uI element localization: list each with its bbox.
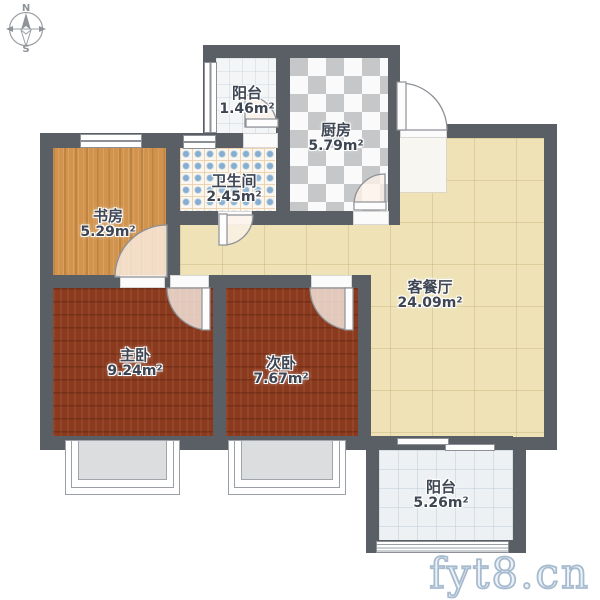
room-area: 1.46m² [219, 101, 274, 117]
compass-north-label: N [22, 3, 30, 14]
label-living-dining: 客餐厅 24.09m² [397, 279, 462, 311]
compass-south-label: S [22, 44, 29, 54]
kitchen-door-opening [353, 211, 389, 225]
master-door-opening [170, 275, 209, 288]
north-needle-icon [21, 13, 31, 30]
room-name: 阳台 [413, 479, 468, 495]
entry-door-opening [400, 124, 447, 138]
bay-window-sill [78, 440, 167, 480]
label-balcony-top: 阳台 1.46m² [219, 85, 274, 117]
room-area: 7.67m² [253, 371, 308, 387]
study-door-opening [120, 275, 165, 288]
wall [213, 288, 226, 436]
room-name: 厨房 [308, 122, 363, 138]
room-area: 5.79m² [308, 138, 363, 154]
wall [544, 124, 557, 450]
wall [203, 45, 400, 58]
room-name: 阳台 [219, 85, 274, 101]
wall [40, 133, 53, 450]
room-name: 主卧 [107, 347, 162, 363]
wall [366, 437, 379, 553]
floor-plan: 阳台 1.46m² 厨房 5.79m² 卫生间 2.45m² 书房 5.29m²… [0, 0, 600, 600]
wall [358, 275, 371, 450]
room-area: 9.24m² [107, 363, 162, 379]
entry-door-swing [400, 83, 447, 130]
sliding-door-panel [445, 444, 495, 451]
site-watermark: fyt8.cn [429, 549, 590, 598]
room-name: 卫生间 [206, 173, 261, 189]
label-study: 书房 5.29m² [80, 208, 135, 240]
room-name: 客餐厅 [397, 279, 462, 295]
compass-rose: N S [3, 2, 49, 54]
room-area: 5.29m² [80, 224, 135, 240]
label-master-bedroom: 主卧 9.24m² [107, 347, 162, 379]
room-name: 次卧 [253, 355, 308, 371]
label-balcony-bottom: 阳台 5.26m² [413, 479, 468, 511]
bay-window-sill [241, 440, 333, 480]
wall [513, 437, 557, 450]
room-name: 书房 [80, 208, 135, 224]
entry-foyer [396, 138, 447, 193]
bathroom-door-opening [218, 211, 252, 225]
window [204, 62, 217, 133]
label-second-bedroom: 次卧 7.67m² [253, 355, 308, 387]
second-door-opening [311, 275, 352, 288]
window [183, 135, 216, 149]
room-area: 5.26m² [413, 495, 468, 511]
label-kitchen: 厨房 5.79m² [308, 122, 363, 154]
wall [513, 450, 526, 553]
room-area: 24.09m² [397, 295, 462, 311]
label-bathroom: 卫生间 2.45m² [206, 173, 261, 205]
balcony-top-door-opening [243, 133, 278, 148]
room-area: 2.45m² [206, 189, 261, 205]
sliding-door-panel [397, 438, 449, 445]
window [80, 134, 142, 148]
